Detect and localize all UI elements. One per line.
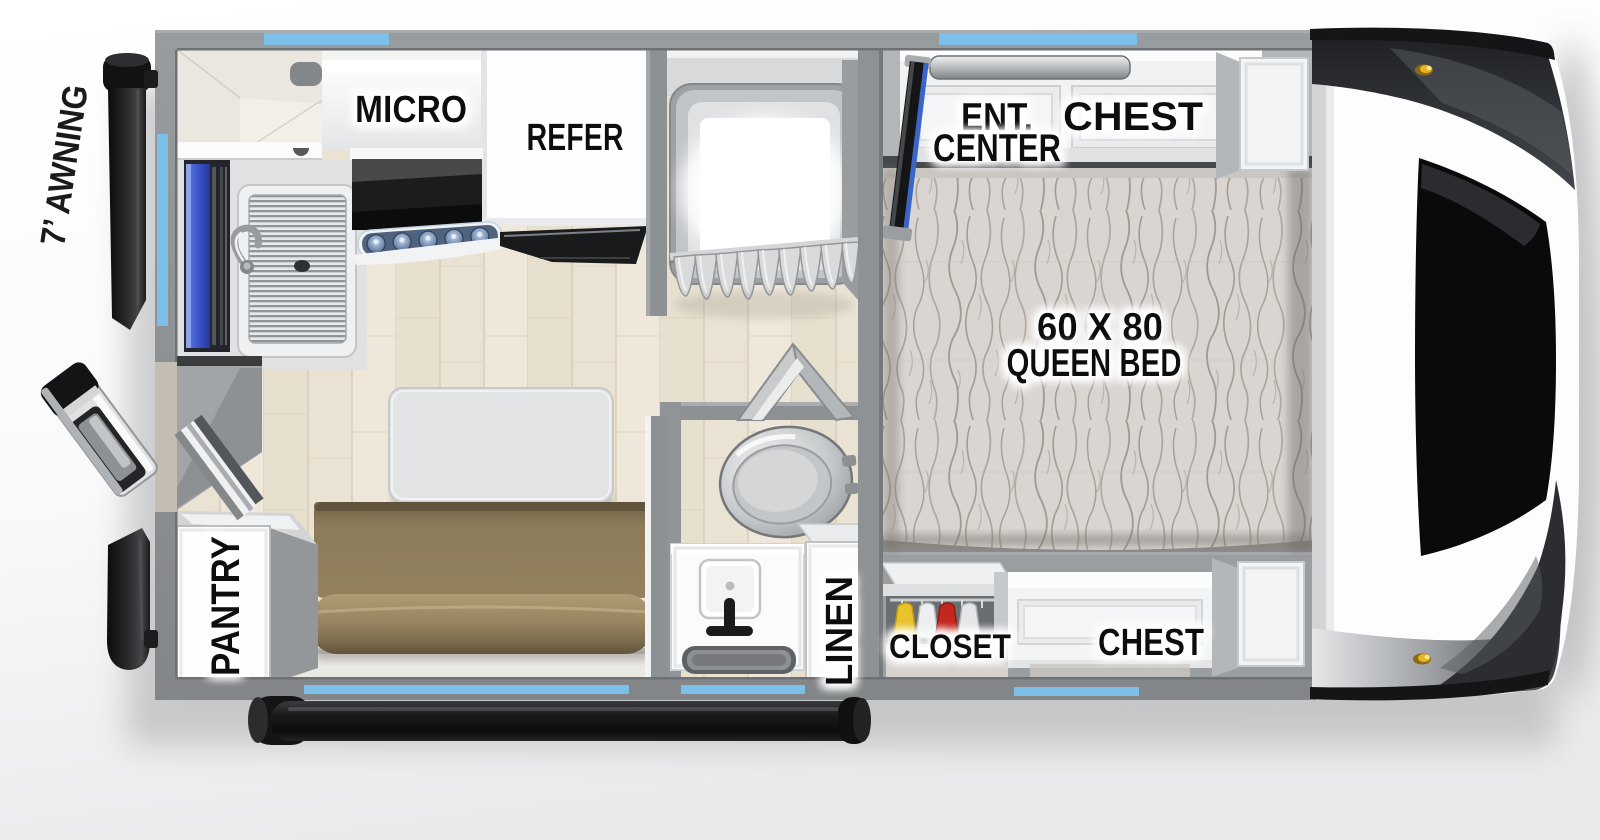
svg-text:PANTRY: PANTRY xyxy=(204,536,248,676)
svg-text:CHEST: CHEST xyxy=(1098,622,1204,664)
svg-text:CHEST: CHEST xyxy=(1063,95,1203,139)
svg-text:QUEEN BED: QUEEN BED xyxy=(1007,342,1182,385)
svg-text:LINEN: LINEN xyxy=(819,576,861,686)
svg-text:CENTER: CENTER xyxy=(933,127,1061,170)
svg-text:MICRO: MICRO xyxy=(355,89,467,131)
svg-text:CLOSET: CLOSET xyxy=(889,628,1011,666)
svg-text:REFER: REFER xyxy=(527,117,624,159)
